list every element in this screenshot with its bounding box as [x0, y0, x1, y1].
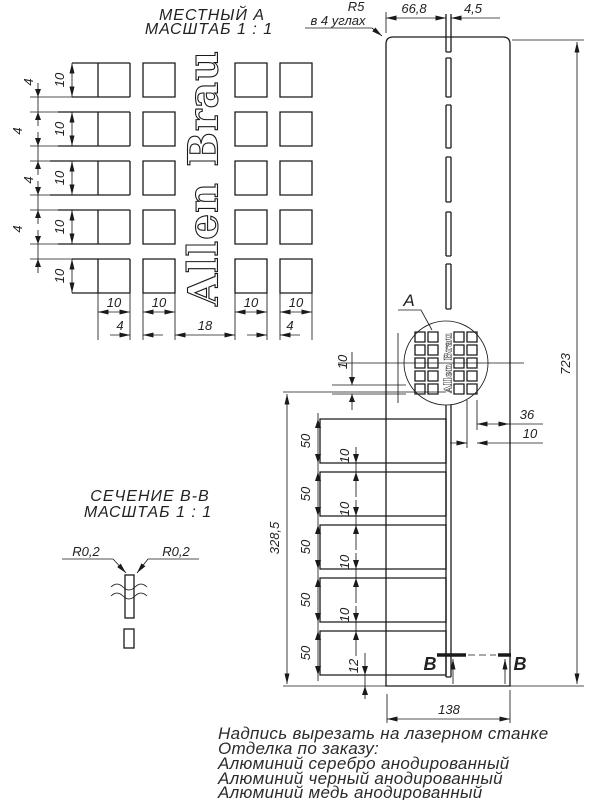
row-gap-dim: 4: [10, 225, 25, 232]
span-dim: 328,5: [267, 394, 287, 684]
row-gap-dim: 4: [10, 127, 25, 134]
panel-top-dims: 66,8 4,5: [386, 1, 500, 33]
drawing-sheet: МЕСТНЫЙ А МАСШТАБ 1 : 1 Allen Brau 10 10…: [0, 0, 601, 800]
total-height-dim: 723: [558, 352, 573, 374]
col-width-dim: 10: [152, 295, 167, 310]
row-height-dim: 10: [52, 121, 67, 136]
slot-length-dim: 50: [298, 433, 313, 448]
row-gap-dim: 4: [21, 78, 36, 85]
col-gap-dim: 4: [286, 318, 293, 333]
section-title: СЕЧЕНИЕ В-В: [90, 488, 209, 505]
radius-left-label: R0,2: [72, 544, 100, 559]
section-mark-left: В: [424, 654, 437, 674]
slot-length-dim: 50: [298, 539, 313, 554]
row-gap-dim: 4: [21, 176, 36, 183]
col-gap-dim: 18: [198, 318, 213, 333]
row-height-dim: 10: [52, 268, 67, 283]
local-view: МЕСТНЫЙ А МАСШТАБ 1 : 1 Allen Brau 10 10…: [10, 5, 312, 340]
width-dim: 138: [387, 690, 510, 723]
row-height-dim: 10: [52, 72, 67, 87]
technical-drawing: МЕСТНЫЙ А МАСШТАБ 1 : 1 Allen Brau 10 10…: [0, 0, 601, 800]
slot-gap-dim: 10: [337, 554, 352, 569]
slot-length-dim: 50: [298, 486, 313, 501]
radius-right-label: R0,2: [162, 544, 190, 559]
panel-view: 66,8 4,5 R5 в 4 углах 723 Allen Brau A: [267, 0, 584, 723]
radius-value: R5: [348, 0, 365, 14]
slot-length-dim: 50: [298, 592, 313, 607]
slot-dims: 50 50 50 50 50 10 10 10 10 12: [298, 413, 368, 699]
right-inner-dim: 10: [523, 426, 538, 441]
section-mark-right: В: [514, 654, 527, 674]
slot-gap-dim: 10: [337, 501, 352, 516]
row-height-dim: 10: [52, 170, 67, 185]
top-offset-dim: 66,8: [401, 1, 427, 16]
section-scale: МАСШТАБ 1 : 1: [84, 504, 212, 521]
slot-width-dim: 4,5: [464, 1, 483, 16]
hole-pitch-dim: 10: [335, 354, 350, 369]
slot-gap-dim: 10: [337, 607, 352, 622]
note-line: Алюминий медь анодированный: [217, 783, 483, 800]
section-bar: [111, 575, 147, 648]
local-view-row-dims: 10 10 10 10 10 4 4 4 4: [10, 63, 72, 293]
detail-mark-text: A: [402, 291, 414, 310]
right-edge-dim: 36: [520, 407, 535, 422]
radius-note: в 4 углах: [310, 13, 366, 28]
local-view-grid: Allen Brau: [50, 50, 312, 307]
brand-text-large: Allen Brau: [180, 50, 228, 307]
corner-radius-note: R5 в 4 углах: [305, 0, 382, 36]
right-offset-dims: 36 10: [450, 400, 543, 448]
notes-block: Надпись вырезать на лазерном станке Отде…: [217, 724, 548, 800]
col-width-dim: 10: [289, 295, 304, 310]
slot-gap-dim: 10: [337, 448, 352, 463]
brand-text-small: Allen Brau: [444, 333, 455, 394]
col-width-dim: 10: [107, 295, 122, 310]
bottom-edge-dim: 12: [346, 658, 361, 673]
section-view: СЕЧЕНИЕ В-В МАСШТАБ 1 : 1 R0,2 R0,2: [62, 488, 212, 648]
slot-zone-dim: 328,5: [267, 521, 282, 554]
col-width-dim: 10: [244, 295, 259, 310]
slot-length-dim: 50: [298, 645, 313, 660]
row-height-dim: 10: [52, 219, 67, 234]
section-cut-marks: В В: [424, 654, 527, 684]
col-gap-dim: 4: [116, 318, 123, 333]
local-view-scale: МАСШТАБ 1 : 1: [145, 21, 273, 38]
panel-width-dim: 138: [438, 702, 460, 717]
